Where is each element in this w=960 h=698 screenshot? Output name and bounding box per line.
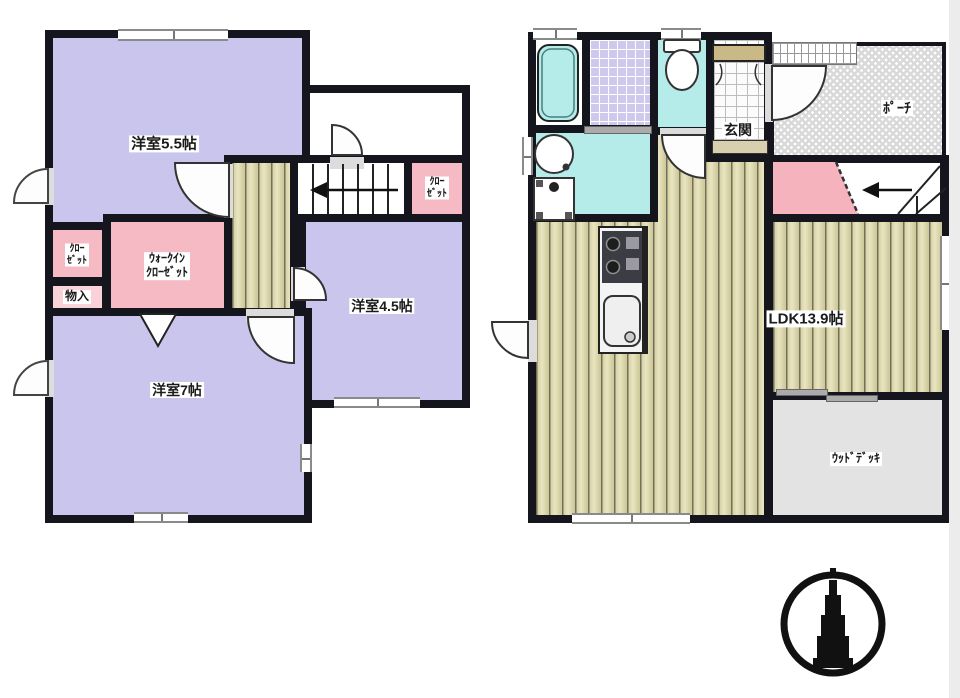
hallway-2f	[224, 155, 298, 322]
window-icon	[661, 28, 701, 40]
shoe-cabinet	[712, 44, 766, 62]
room-label-ldk: LDK13.9帖	[766, 310, 845, 327]
porch-step	[772, 42, 857, 65]
scan-edge	[949, 0, 960, 698]
bathtub-icon	[537, 44, 579, 122]
window-opening	[45, 168, 54, 205]
room-label-porch: ﾎﾟｰﾁ	[881, 100, 913, 116]
door-opening	[765, 64, 773, 122]
room-label-closet-stairs: ｸﾛｰ ｾﾞｯﾄ	[425, 177, 449, 200]
window-icon	[300, 444, 312, 472]
room-label-storage: 物入	[63, 290, 91, 304]
sliding-door-icon	[584, 126, 652, 134]
window-icon	[334, 397, 420, 408]
kitchen-counter	[598, 226, 648, 354]
toilet-room	[650, 32, 714, 135]
window-icon	[134, 512, 188, 523]
window-icon	[522, 137, 533, 175]
door-opening	[330, 157, 364, 169]
room-label-bedroom-4-5: 洋室4.5帖	[349, 298, 414, 314]
room-label-bedroom-5-5: 洋室5.5帖	[129, 135, 199, 152]
bedroom-7	[45, 308, 312, 523]
casement-window-icon	[14, 169, 48, 395]
room-label-genkan: 玄関	[722, 122, 754, 138]
window-icon	[572, 513, 690, 524]
staircase-1f	[765, 155, 948, 222]
room-label-walk-in-closet: ｳｫｰｸｲﾝ ｸﾛｰｾﾞｯﾄ	[144, 252, 190, 280]
sliding-door-icon	[776, 389, 828, 396]
room-label-closet-left: ｸﾛｰ ｾﾞｯﾄ	[65, 244, 89, 267]
room-label-wood-deck: ｳｯﾄﾞﾃﾞｯｷ	[830, 452, 882, 466]
bath-washing-area	[582, 32, 658, 133]
sliding-door-icon	[826, 395, 878, 402]
door-opening	[291, 267, 305, 301]
floor-plan-canvas: 洋室5.5帖 ｸﾛｰ ｾﾞｯﾄ 物入 ｳｫｰｸｲﾝ ｸﾛｰｾﾞｯﾄ ｸﾛｰ ｾﾞ…	[0, 0, 960, 698]
genkan-step	[712, 140, 768, 154]
window-icon	[533, 28, 577, 40]
door-opening	[660, 128, 706, 137]
room-label-bedroom-7: 洋室7帖	[150, 382, 204, 398]
compass-north-icon	[778, 566, 888, 678]
window-opening	[45, 360, 54, 397]
window-icon	[118, 29, 228, 41]
door-opening	[224, 164, 233, 218]
washroom	[528, 125, 658, 222]
door-opening	[528, 320, 537, 362]
door-opening	[246, 309, 294, 322]
